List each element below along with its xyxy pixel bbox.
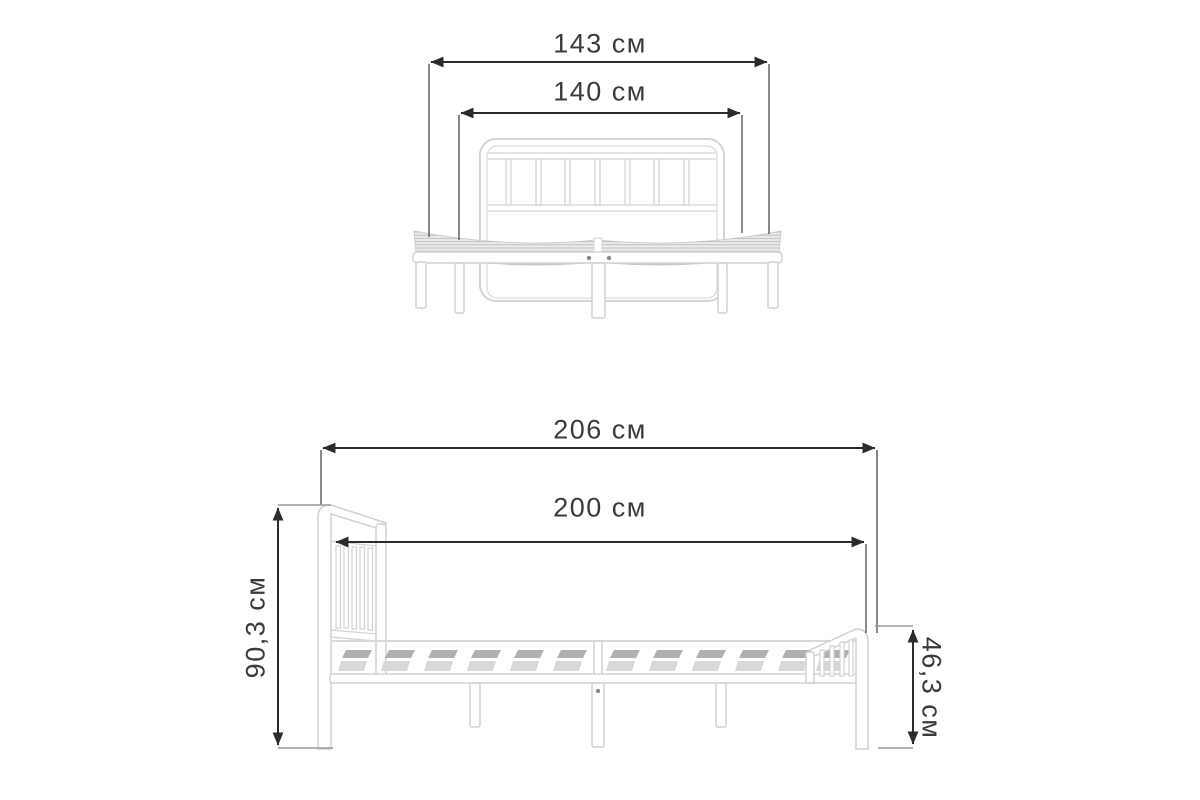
side-headboard-slats: [336, 546, 373, 630]
diagram-canvas: 143 см 140 см 206 см 200 см 90,3 см 46,3…: [0, 0, 1200, 800]
front-legs: [416, 256, 778, 318]
side-overall-length-label: 206 см: [553, 415, 647, 446]
front-mattress-width-label: 140 см: [553, 77, 647, 108]
extension-lines: [321, 64, 877, 633]
side-footboard: [806, 629, 868, 749]
headboard-height-label: 90,3 см: [241, 576, 272, 679]
front-overall-width-label: 143 см: [553, 29, 647, 60]
bed-dimensions-drawing: [0, 0, 1200, 800]
side-slat-deck: [330, 641, 862, 683]
front-slat-deck: [413, 231, 782, 265]
front-headboard-slats: [506, 159, 689, 205]
front-view-bed: [413, 139, 782, 318]
side-legs: [470, 683, 726, 747]
footboard-height-label: 46,3 см: [916, 637, 947, 740]
side-mattress-length-label: 200 см: [553, 493, 647, 524]
